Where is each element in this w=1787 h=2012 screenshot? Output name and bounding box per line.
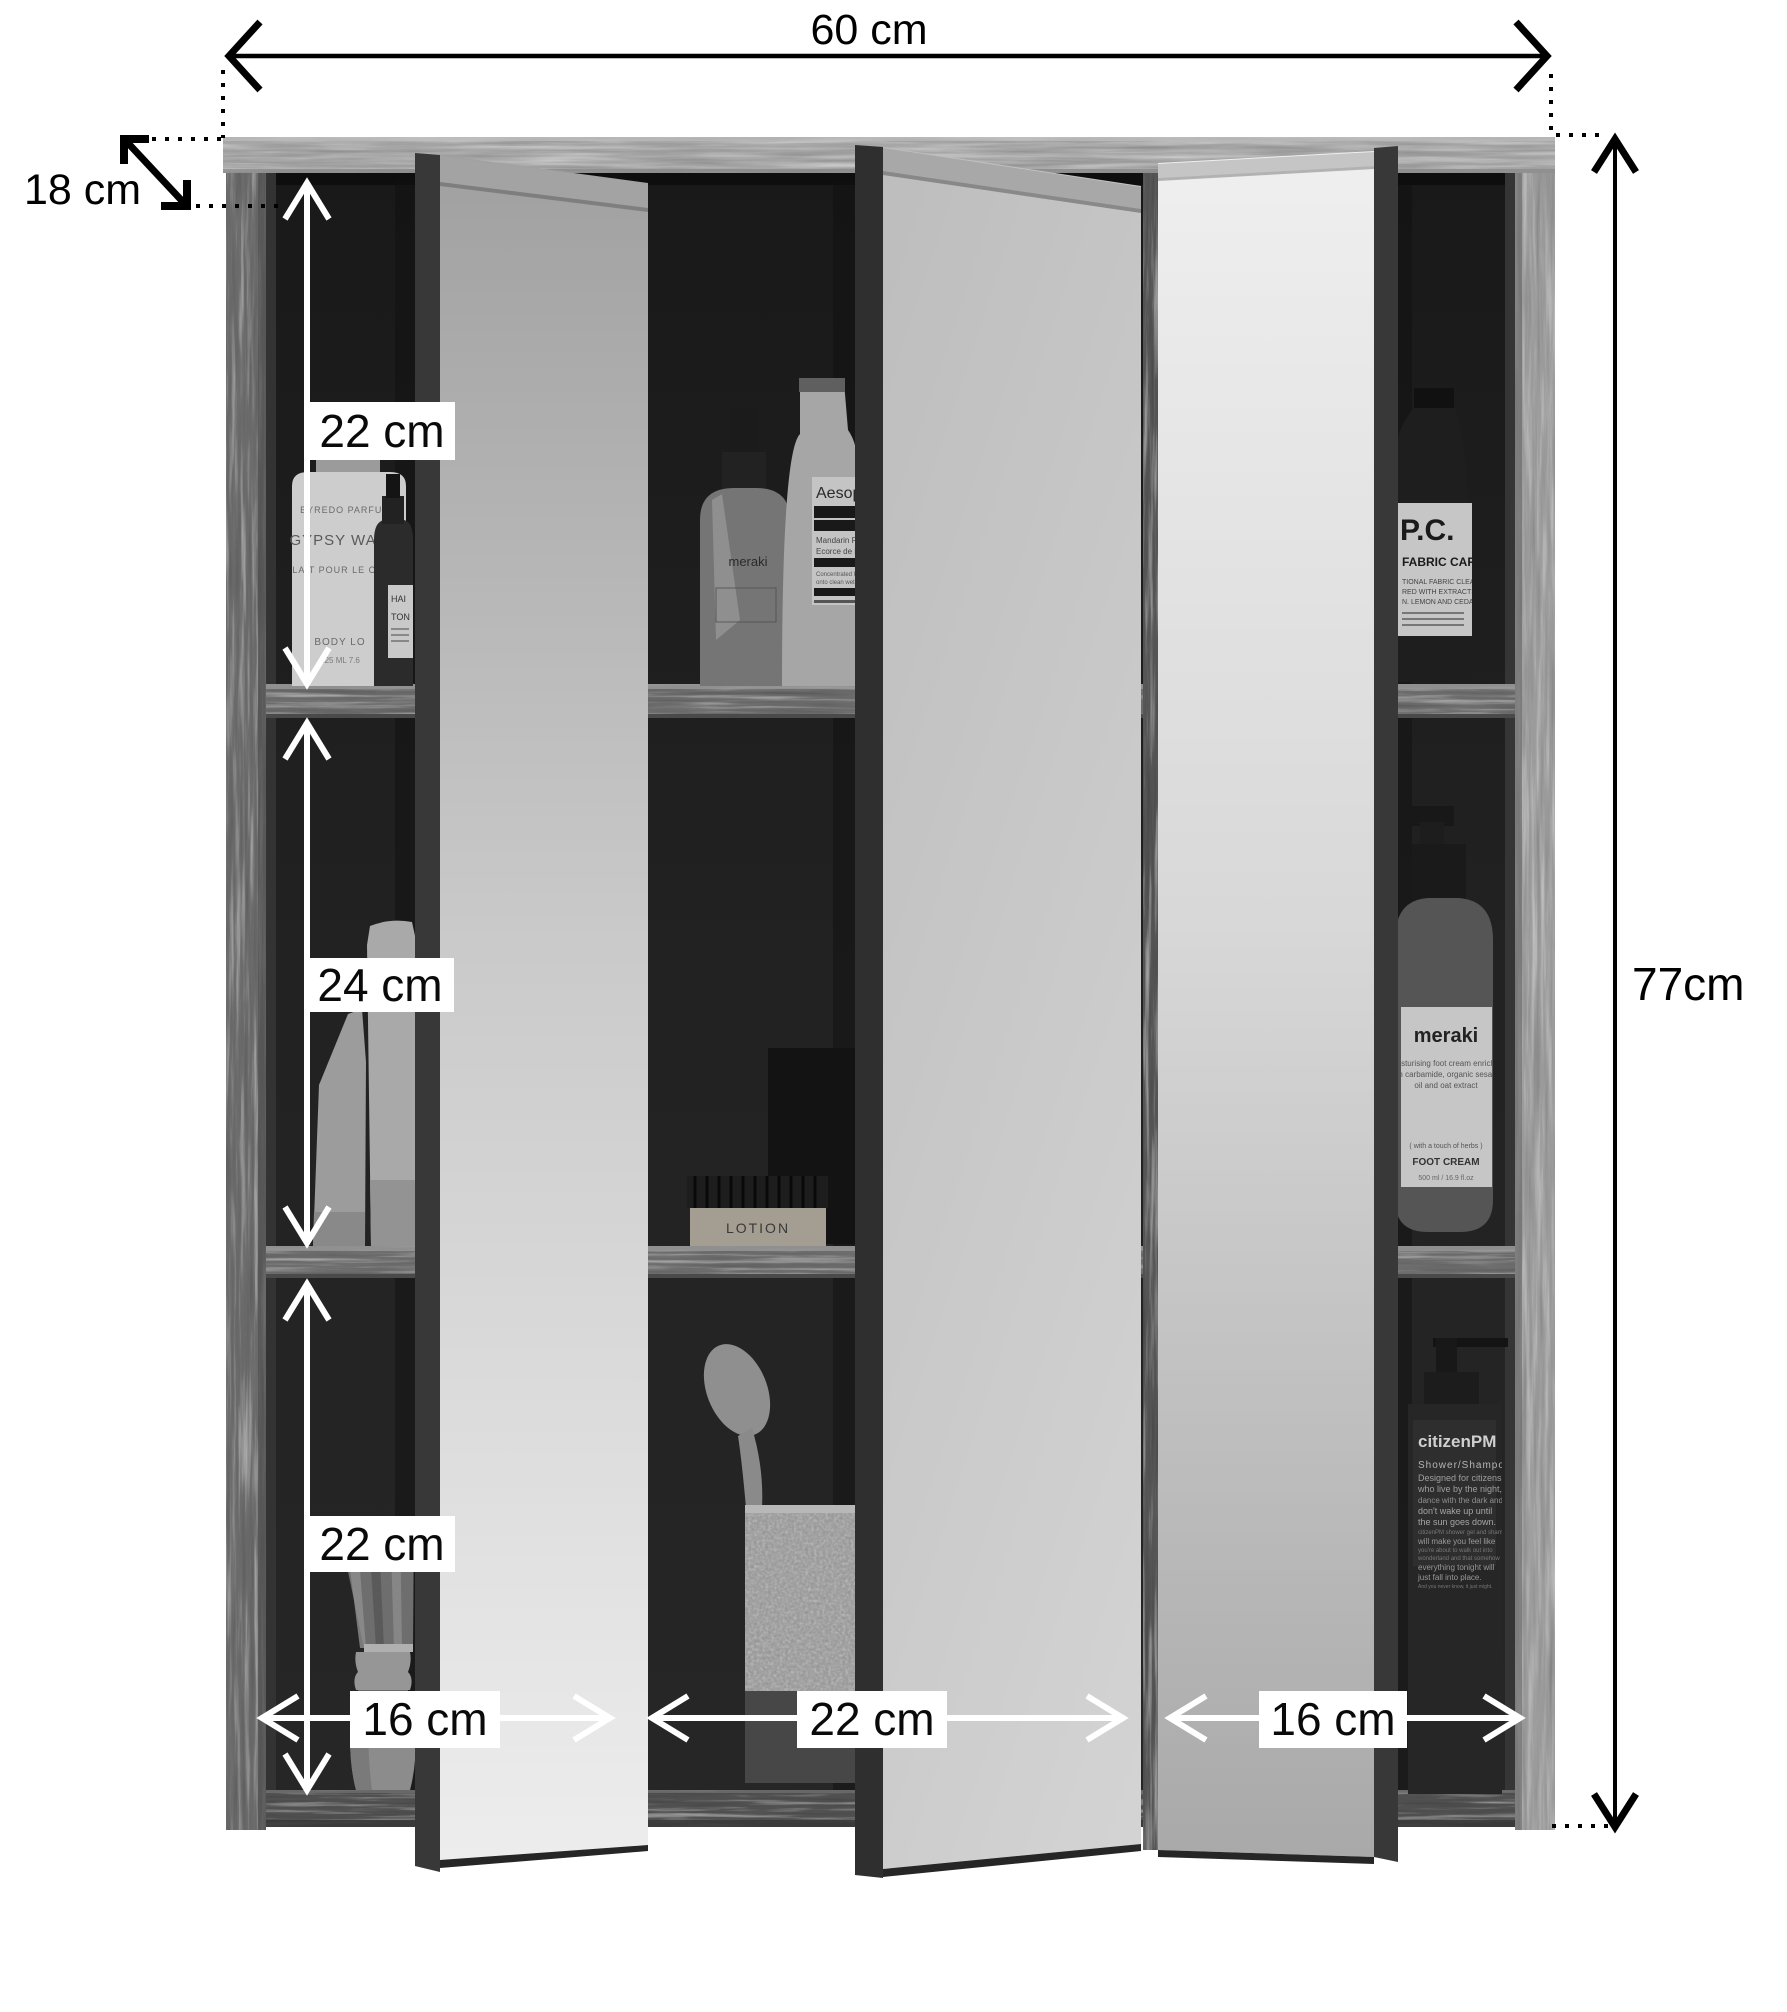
svg-text:will make you feel like: will make you feel like <box>1417 1537 1496 1546</box>
svg-text:77cm: 77cm <box>1632 958 1744 1010</box>
svg-text:Designed for citizens: Designed for citizens <box>1418 1473 1502 1483</box>
svg-text:don't wake up until: don't wake up until <box>1418 1506 1492 1516</box>
svg-text:you're about to walk out into: you're about to walk out into <box>1418 1548 1493 1554</box>
svg-text:oil and oat extract: oil and oat extract <box>1414 1081 1478 1090</box>
svg-text:FABRIC CARE: FABRIC CARE <box>1402 555 1484 569</box>
svg-text:Ecorce de M: Ecorce de M <box>816 547 861 556</box>
svg-text:meraki: meraki <box>1414 1025 1479 1047</box>
svg-text:24 cm: 24 cm <box>317 959 442 1011</box>
svg-text:HAI: HAI <box>391 594 406 604</box>
svg-text:FOOT CREAM: FOOT CREAM <box>1412 1157 1479 1168</box>
svg-text:citizenPM shower gel and shamp: citizenPM shower gel and shampoo <box>1418 1530 1513 1536</box>
svg-text:22 cm: 22 cm <box>809 1693 934 1745</box>
svg-text:who live by the night,: who live by the night, <box>1417 1484 1502 1494</box>
svg-text:TON: TON <box>391 612 410 622</box>
svg-text:Aesop: Aesop <box>816 485 861 502</box>
svg-text:16 cm: 16 cm <box>1270 1693 1395 1745</box>
svg-text:meraki: meraki <box>728 554 767 569</box>
svg-text:wonderland and that somehow: wonderland and that somehow <box>1417 1556 1500 1562</box>
svg-text:just fall into place.: just fall into place. <box>1417 1573 1482 1582</box>
svg-text:onto clean wet f: onto clean wet f <box>816 580 858 586</box>
svg-text:18 cm: 18 cm <box>24 166 141 214</box>
svg-text:And you never know, it just mi: And you never know, it just might. <box>1418 1584 1492 1590</box>
svg-text:dance with the dark and: dance with the dark and <box>1418 1496 1503 1505</box>
svg-text:P.C.: P.C. <box>1400 514 1454 547</box>
svg-text:22 cm: 22 cm <box>319 405 444 457</box>
svg-text:60 cm: 60 cm <box>810 6 927 54</box>
svg-text:the sun goes down.: the sun goes down. <box>1418 1517 1496 1527</box>
svg-text:Moisturising foot cream enrich: Moisturising foot cream enriched <box>1388 1059 1504 1068</box>
svg-text:500 ml / 16.9 fl.oz: 500 ml / 16.9 fl.oz <box>1418 1175 1474 1182</box>
svg-text:( with a touch of herbs ): ( with a touch of herbs ) <box>1409 1143 1482 1150</box>
svg-text:everything tonight will: everything tonight will <box>1418 1563 1495 1572</box>
svg-text:citizenPM: citizenPM <box>1418 1432 1496 1451</box>
svg-text:Concentrated lo: Concentrated lo <box>816 572 859 578</box>
svg-text:LOTION: LOTION <box>726 1220 790 1236</box>
svg-text:Shower/Shampoo: Shower/Shampoo <box>1418 1460 1512 1471</box>
svg-text:22 cm: 22 cm <box>319 1518 444 1570</box>
svg-text:16 cm: 16 cm <box>362 1693 487 1745</box>
svg-text:BODY LO: BODY LO <box>314 637 365 648</box>
svg-text:with carbamide, organic sesame: with carbamide, organic sesame <box>1388 1070 1504 1079</box>
